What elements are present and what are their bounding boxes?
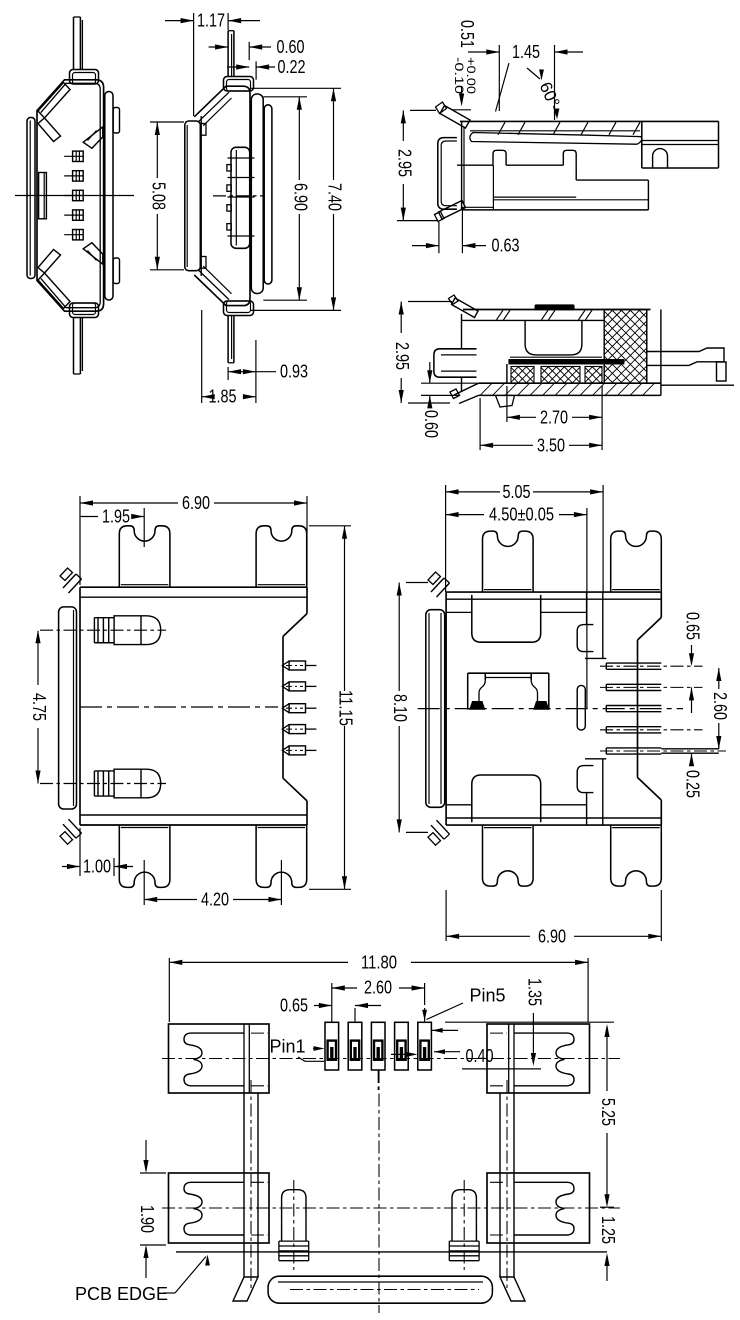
svg-text:+0.00: +0.00 <box>464 57 476 94</box>
svg-text:1.90: 1.90 <box>137 1205 157 1233</box>
svg-text:0.40: 0.40 <box>466 1046 494 1066</box>
svg-text:11.15: 11.15 <box>336 690 356 726</box>
svg-text:1.35: 1.35 <box>524 978 544 1006</box>
svg-text:0.65: 0.65 <box>280 996 308 1016</box>
svg-text:2.70: 2.70 <box>540 407 568 427</box>
svg-text:3.50: 3.50 <box>537 435 565 455</box>
svg-text:6.90: 6.90 <box>290 183 310 211</box>
svg-text:2.60: 2.60 <box>710 692 730 720</box>
svg-text:1.45: 1.45 <box>512 42 540 62</box>
svg-text:1.00: 1.00 <box>83 857 111 877</box>
svg-text:0.22: 0.22 <box>278 57 306 77</box>
svg-text:4.75: 4.75 <box>29 693 49 721</box>
svg-text:0.93: 0.93 <box>280 362 308 382</box>
svg-text:2.95: 2.95 <box>392 342 412 370</box>
svg-text:PCB EDGE: PCB EDGE <box>75 1284 168 1304</box>
svg-text:-0.10: -0.10 <box>452 57 464 94</box>
svg-text:4.50±0.05: 4.50±0.05 <box>489 505 554 525</box>
svg-text:0.25: 0.25 <box>683 770 703 798</box>
svg-text:11.80: 11.80 <box>361 952 397 972</box>
svg-text:6.90: 6.90 <box>538 926 566 946</box>
svg-text:0.65: 0.65 <box>683 612 703 640</box>
svg-text:1.95: 1.95 <box>102 507 130 527</box>
svg-text:0.60: 0.60 <box>421 410 441 438</box>
svg-text:2.60: 2.60 <box>364 978 392 998</box>
svg-text:1.25: 1.25 <box>598 1216 618 1244</box>
svg-text:5.05: 5.05 <box>503 482 531 502</box>
svg-text:0.63: 0.63 <box>492 236 520 256</box>
svg-text:2.95: 2.95 <box>394 149 414 177</box>
svg-text:Pin5: Pin5 <box>469 986 505 1006</box>
svg-text:5.08: 5.08 <box>148 182 168 210</box>
svg-text:5.25: 5.25 <box>598 1098 618 1126</box>
svg-text:1.85: 1.85 <box>209 387 237 407</box>
svg-text:0.51: 0.51 <box>457 20 477 48</box>
svg-text:1.17: 1.17 <box>197 11 225 31</box>
svg-text:6.90: 6.90 <box>182 493 210 513</box>
svg-text:Pin1: Pin1 <box>269 1037 305 1057</box>
svg-text:8.10: 8.10 <box>390 694 410 722</box>
svg-text:0.60: 0.60 <box>277 37 305 57</box>
svg-text:4.20: 4.20 <box>201 890 229 910</box>
svg-text:7.40: 7.40 <box>325 183 345 211</box>
